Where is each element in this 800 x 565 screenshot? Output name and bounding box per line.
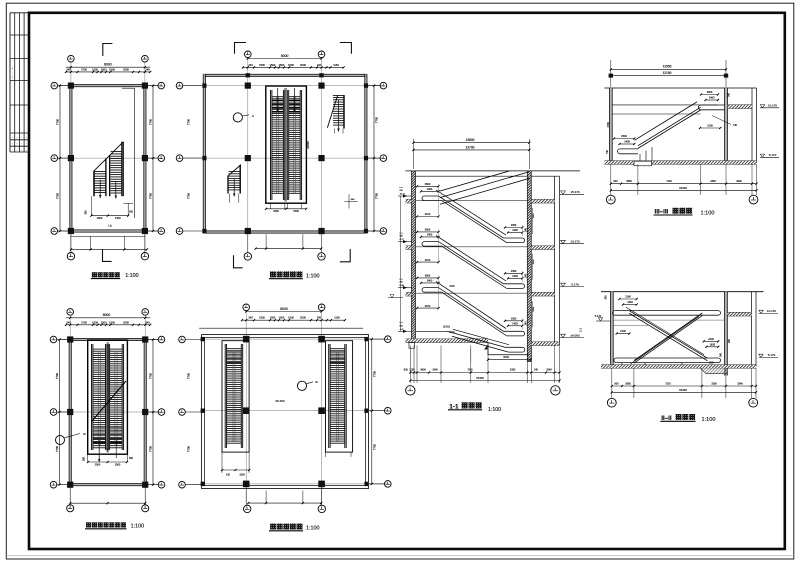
svg-text:3250: 3250: [533, 259, 535, 265]
svg-text:5.170: 5.170: [768, 353, 776, 357]
svg-text:2100: 2100: [425, 259, 431, 262]
svg-text:5.170: 5.170: [571, 282, 579, 286]
svg-text:900: 900: [614, 180, 619, 183]
svg-text:240: 240: [145, 320, 150, 324]
svg-text:1500: 1500: [101, 320, 107, 324]
svg-text:1:100: 1:100: [306, 525, 320, 531]
svg-text:2500: 2500: [621, 135, 627, 138]
svg-text:1433: 1433: [512, 275, 518, 278]
svg-text:2100: 2100: [425, 305, 431, 308]
svg-text:2000: 2000: [300, 316, 306, 320]
svg-text:7700: 7700: [372, 443, 376, 450]
svg-text:1350: 1350: [511, 270, 517, 273]
svg-text:2050: 2050: [123, 68, 129, 72]
svg-text:•: •: [12, 68, 13, 71]
svg-text:1400: 1400: [427, 280, 433, 283]
svg-text:2360: 2360: [710, 180, 716, 183]
svg-text:12550: 12550: [663, 65, 672, 69]
svg-text:1150: 1150: [334, 316, 340, 320]
svg-text:7700: 7700: [187, 192, 191, 199]
svg-text:8000: 8000: [280, 307, 288, 311]
svg-text:1350: 1350: [511, 318, 517, 321]
svg-text:2850: 2850: [625, 383, 631, 386]
svg-text:26.700: 26.700: [275, 399, 285, 403]
svg-text:900: 900: [404, 369, 409, 372]
svg-text:3600: 3600: [707, 91, 713, 94]
svg-text:1:100: 1:100: [702, 417, 716, 423]
svg-text:7700: 7700: [148, 445, 152, 452]
svg-text:15400: 15400: [679, 388, 687, 392]
svg-text:15400: 15400: [679, 186, 687, 190]
svg-text:240: 240: [66, 320, 71, 324]
svg-text:1550: 1550: [259, 316, 265, 320]
svg-text:M: M: [315, 380, 317, 384]
svg-text:1:100: 1:100: [701, 211, 715, 217]
svg-text:900: 900: [615, 383, 620, 386]
svg-text:2000: 2000: [300, 63, 306, 67]
svg-text:1464: 1464: [627, 301, 633, 304]
svg-text:1433: 1433: [512, 229, 518, 232]
svg-text:1500: 1500: [109, 68, 115, 72]
svg-text:7700: 7700: [187, 445, 191, 452]
svg-text:1500: 1500: [288, 63, 294, 67]
svg-text:240: 240: [248, 63, 253, 67]
svg-text:1500: 1500: [270, 316, 276, 320]
svg-text:8000: 8000: [103, 313, 111, 317]
svg-text:1500: 1500: [95, 464, 101, 467]
svg-text:3250: 3250: [533, 306, 535, 312]
svg-text:12550: 12550: [306, 141, 310, 149]
svg-text:1550: 1550: [259, 63, 265, 67]
svg-text:2700: 2700: [81, 68, 87, 72]
svg-text:1:100: 1:100: [131, 523, 145, 529]
svg-text:1:100: 1:100: [125, 273, 139, 279]
svg-text:300: 300: [129, 211, 134, 214]
svg-text:10.170: 10.170: [570, 240, 580, 244]
svg-text:2350: 2350: [711, 383, 717, 386]
svg-text:•: •: [12, 76, 13, 79]
svg-text:↑上: ↑上: [108, 223, 113, 228]
svg-text:5.170: 5.170: [769, 153, 777, 157]
svg-text:7700: 7700: [55, 372, 59, 379]
svg-text:1350: 1350: [511, 224, 517, 227]
svg-text:2540: 2540: [737, 383, 743, 386]
svg-text:7201: 7201: [467, 369, 473, 372]
svg-text:8000: 8000: [281, 54, 289, 58]
svg-text:1500: 1500: [279, 316, 285, 320]
svg-text:12190: 12190: [663, 71, 672, 75]
svg-text:2200: 2200: [708, 338, 714, 341]
svg-text:(15A): (15A): [443, 325, 450, 329]
svg-text:2050: 2050: [123, 320, 129, 324]
svg-text:1500: 1500: [270, 63, 276, 67]
svg-text:3600: 3600: [425, 229, 431, 232]
svg-text:7700: 7700: [55, 118, 59, 125]
svg-text:3600: 3600: [425, 275, 431, 278]
svg-text:7700: 7700: [55, 445, 59, 452]
svg-text:1500: 1500: [101, 68, 107, 72]
svg-text:15.170: 15.170: [570, 190, 580, 194]
svg-text:5.170: 5.170: [595, 314, 602, 318]
svg-text:1-1: 1-1: [579, 328, 583, 332]
svg-text:1500: 1500: [115, 464, 121, 467]
svg-text:1463: 1463: [709, 97, 715, 100]
svg-text:7700: 7700: [148, 118, 152, 125]
svg-text:240: 240: [66, 68, 71, 72]
svg-text:7700: 7700: [187, 372, 191, 379]
svg-text:7700: 7700: [375, 192, 379, 199]
svg-text:10.17: 10.17: [400, 194, 406, 196]
svg-text:2350: 2350: [510, 369, 516, 372]
svg-text:240: 240: [145, 68, 150, 72]
svg-text:8000: 8000: [104, 62, 112, 66]
svg-text:3000: 3000: [736, 180, 742, 183]
svg-text:10.170: 10.170: [767, 309, 777, 313]
svg-text:1500: 1500: [288, 316, 294, 320]
svg-text:1:100: 1:100: [306, 273, 320, 279]
svg-text:下: 下: [106, 448, 109, 452]
svg-text:240: 240: [317, 63, 322, 67]
svg-text:1500: 1500: [109, 320, 115, 324]
svg-text:7140: 7140: [666, 180, 672, 183]
svg-text:2100: 2100: [425, 213, 431, 216]
svg-text:1:100: 1:100: [488, 407, 501, 413]
svg-text:1500: 1500: [97, 216, 103, 220]
svg-text:1400: 1400: [427, 188, 433, 191]
svg-text:2700: 2700: [81, 320, 87, 324]
svg-text:3600: 3600: [420, 369, 426, 372]
svg-text:1635: 1635: [710, 344, 716, 347]
svg-text:7201: 7201: [449, 331, 455, 334]
svg-text:240: 240: [534, 369, 539, 372]
svg-text:240: 240: [248, 316, 253, 320]
svg-text:7700: 7700: [187, 118, 191, 125]
svg-text:300: 300: [82, 456, 85, 461]
svg-text:7150: 7150: [607, 122, 610, 128]
svg-text:740: 740: [733, 124, 738, 127]
svg-text:2850: 2850: [626, 180, 632, 183]
svg-text:1500: 1500: [279, 63, 285, 67]
svg-text:150: 150: [226, 474, 231, 477]
svg-text:13700: 13700: [466, 145, 475, 149]
svg-text:1150: 1150: [333, 63, 339, 67]
svg-text:3600: 3600: [425, 183, 431, 186]
svg-text:7700: 7700: [55, 192, 59, 199]
svg-text:7700: 7700: [148, 372, 152, 379]
svg-text:10.170: 10.170: [768, 104, 778, 108]
svg-text:7700: 7700: [375, 116, 379, 123]
svg-text:M: M: [83, 432, 85, 436]
svg-text:1438: 1438: [624, 141, 630, 144]
svg-text:7201: 7201: [449, 285, 455, 288]
svg-text:1500: 1500: [115, 216, 121, 220]
svg-text:4200: 4200: [708, 362, 714, 365]
svg-text:1400: 1400: [427, 234, 433, 237]
svg-text:1150: 1150: [409, 369, 415, 372]
svg-text:7201: 7201: [665, 383, 671, 386]
svg-text:7700: 7700: [372, 370, 376, 377]
svg-text:1500: 1500: [92, 320, 98, 324]
svg-text:2540: 2540: [546, 369, 552, 372]
svg-text:2160: 2160: [625, 296, 631, 299]
svg-text:13800: 13800: [466, 138, 475, 142]
svg-text:7700: 7700: [148, 192, 152, 199]
svg-text:1400: 1400: [432, 369, 438, 372]
svg-text:1500: 1500: [273, 210, 279, 213]
svg-text:15400: 15400: [476, 376, 484, 380]
svg-text:4200: 4200: [503, 355, 509, 359]
svg-text:±0.000: ±0.000: [570, 333, 579, 337]
svg-text:3250: 3250: [533, 213, 535, 219]
svg-text:1500: 1500: [239, 474, 245, 477]
svg-text:240: 240: [317, 316, 322, 320]
svg-text:1500: 1500: [92, 68, 98, 72]
svg-text:1500: 1500: [293, 210, 299, 213]
svg-text:1433: 1433: [512, 323, 518, 326]
svg-text:300: 300: [129, 457, 134, 460]
svg-text:2100: 2100: [620, 330, 626, 333]
svg-text:300: 300: [85, 210, 88, 215]
svg-text:2100: 2100: [707, 125, 713, 128]
